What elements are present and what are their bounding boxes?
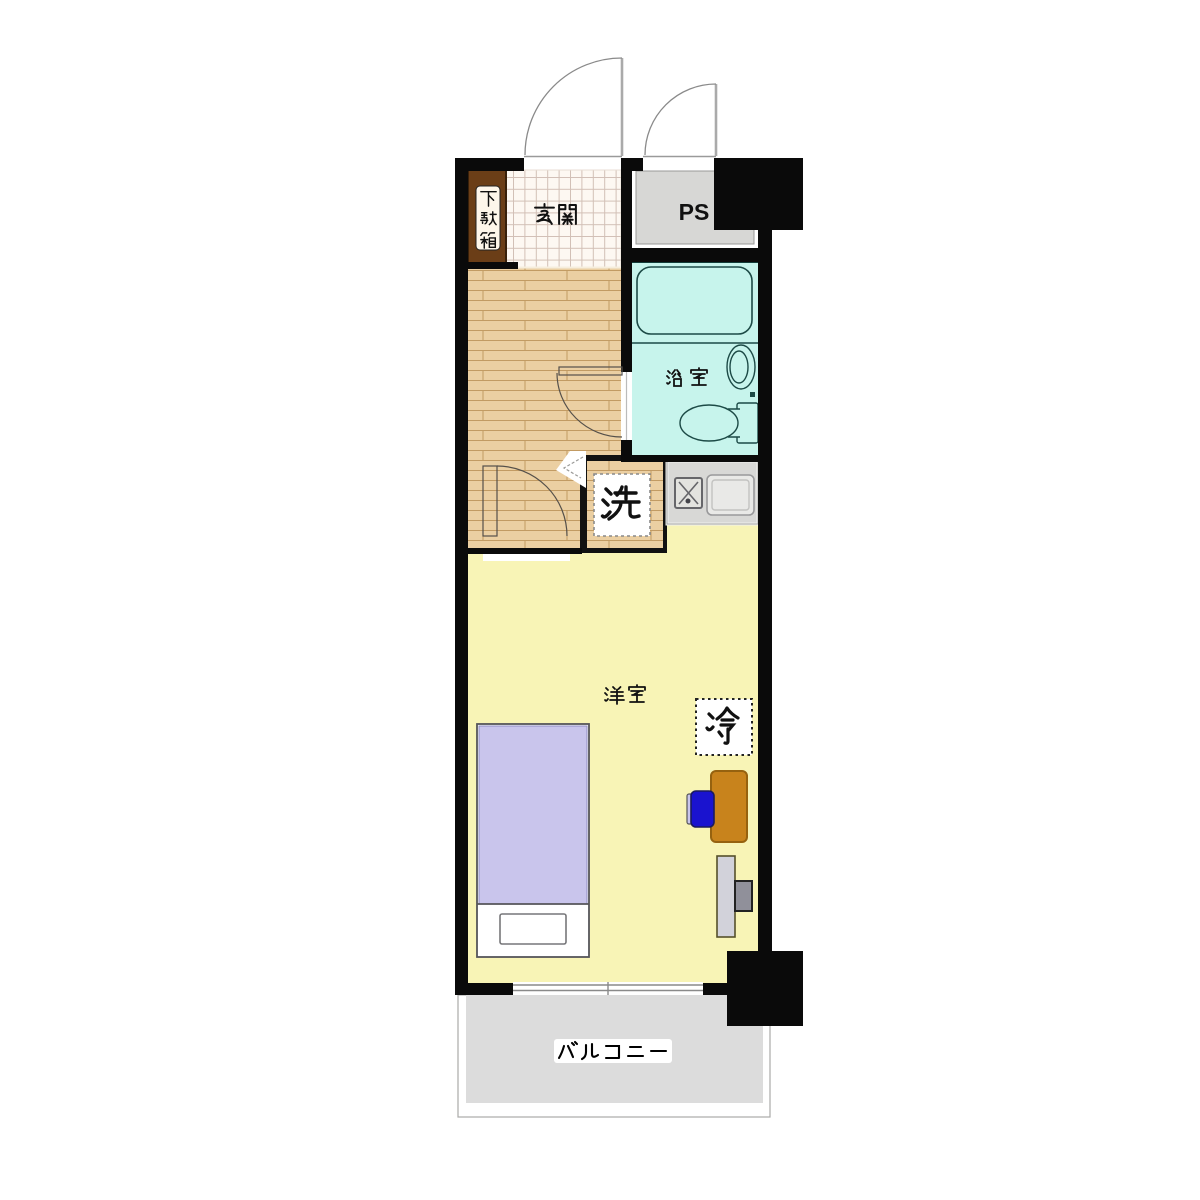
svg-text:PS: PS — [679, 199, 710, 225]
